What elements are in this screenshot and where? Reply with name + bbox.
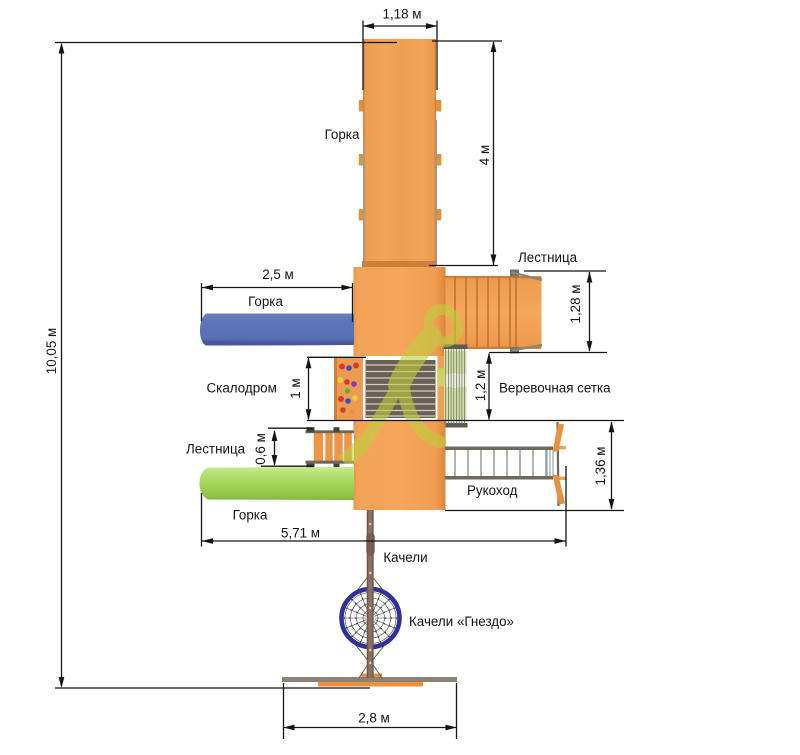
svg-text:Рукоход: Рукоход xyxy=(467,483,518,498)
svg-text:1,28 м: 1,28 м xyxy=(568,285,583,324)
svg-text:Горка: Горка xyxy=(325,127,360,142)
svg-text:Скалодром: Скалодром xyxy=(207,381,277,396)
svg-text:Лестница: Лестница xyxy=(186,442,246,457)
svg-text:4 м: 4 м xyxy=(477,145,492,165)
svg-text:Горка: Горка xyxy=(248,294,283,309)
svg-text:1,36 м: 1,36 м xyxy=(593,447,608,486)
svg-text:Качели: Качели xyxy=(383,550,427,565)
svg-text:2,8 м: 2,8 м xyxy=(358,711,390,726)
svg-text:0,6 м: 0,6 м xyxy=(253,433,268,465)
svg-text:Горка: Горка xyxy=(233,508,268,523)
svg-text:Лестница: Лестница xyxy=(518,250,578,265)
svg-text:1,2 м: 1,2 м xyxy=(473,370,488,402)
svg-text:Веревочная сетка: Веревочная сетка xyxy=(499,381,611,396)
svg-text:5,71 м: 5,71 м xyxy=(281,526,320,541)
svg-text:1,18 м: 1,18 м xyxy=(383,7,422,22)
svg-text:Качели «Гнездо»: Качели «Гнездо» xyxy=(409,614,514,629)
svg-text:1 м: 1 м xyxy=(288,378,303,398)
svg-text:10,05 м: 10,05 м xyxy=(44,328,59,374)
svg-text:2,5 м: 2,5 м xyxy=(262,267,294,282)
